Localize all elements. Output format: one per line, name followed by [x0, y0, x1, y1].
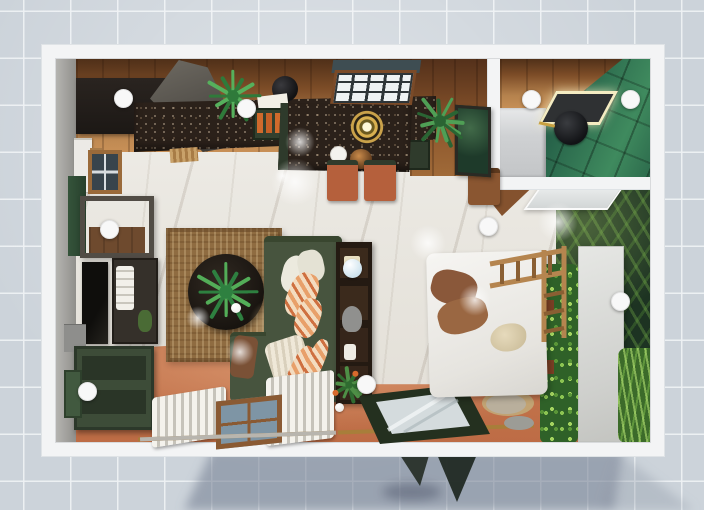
hotspot-marker-kitchen-cabinets[interactable]: [114, 89, 133, 108]
hotspot-marker-sideboard[interactable]: [78, 382, 97, 401]
design-canvas[interactable]: [0, 0, 704, 510]
hotspot-marker-kitchen-plant[interactable]: [237, 99, 256, 118]
hotspot-marker-shelf-plant[interactable]: [357, 375, 376, 394]
hotspot-marker-island-floor[interactable]: [479, 217, 498, 236]
hotspot-marker-desk[interactable]: [100, 220, 119, 239]
hotspot-marker-bathroom-vanity[interactable]: [522, 90, 541, 109]
hotspot-layer: [0, 0, 704, 510]
hotspot-marker-wardrobe[interactable]: [611, 292, 630, 311]
hotspot-marker-bathroom-shower[interactable]: [621, 90, 640, 109]
